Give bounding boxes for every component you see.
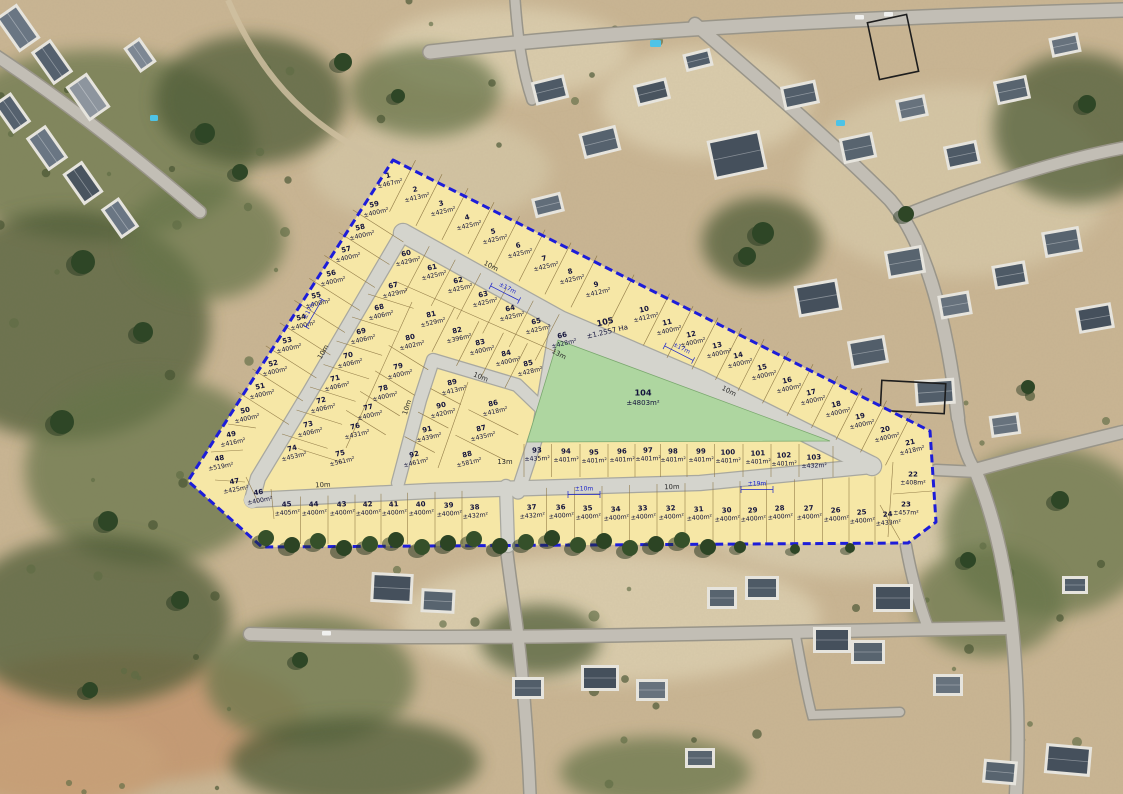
plot-area: ±401m² [660,456,686,464]
house [685,748,715,768]
plot-number: 39 [443,501,454,510]
plot-area: ±401m² [715,457,741,465]
plot-area: ±401m² [771,460,797,468]
house [581,665,619,691]
plot-area: ±435m² [524,455,550,463]
plot-number: 36 [555,503,566,512]
house [989,412,1022,438]
car [322,631,331,636]
house [982,759,1018,786]
plot-number: 32 [665,504,676,513]
plot-number: 23 [901,501,911,509]
house [873,584,913,612]
plot-area: ±401m² [745,458,771,466]
plot-number: 97 [643,446,653,454]
pool [836,120,845,126]
plot-number: 99 [696,447,706,455]
plot-area: ±401m² [553,456,579,464]
plot-area: ±401m² [581,457,607,465]
plot-number: 40 [415,500,426,509]
plot-number: 30 [721,506,732,515]
plot-number: 27 [803,504,814,513]
house [370,572,414,604]
plot-number: 24 [882,510,893,519]
road-width-label: 10m [315,481,331,490]
plot-number: 101 [750,449,765,458]
plot-number: 26 [830,506,841,515]
plot-number: 47 [229,477,240,487]
plot-number: 45 [281,500,292,509]
pool [650,40,661,47]
plot-number: 43 [336,500,347,509]
plot-area: ±4803m² [626,399,659,407]
road-width-label: 13m [497,458,513,466]
plot-number: 41 [388,500,399,509]
plot-number: 37 [526,503,537,512]
plot-number: 28 [774,504,785,513]
site-plan-canvas: 1±467m²2±413m²3±425m²4±425m²5±425m²6±425… [0,0,1123,794]
pool [150,115,158,121]
plot-area: ±401m² [688,456,714,464]
house [512,677,544,699]
plot-area: ±401m² [635,455,661,463]
plot-number: 104 [634,388,651,398]
plot-number: 31 [693,505,704,514]
plot-number: 94 [561,447,571,455]
plot-area: ±408m² [900,480,926,487]
plot-number: 102 [776,451,791,460]
plot-number: 29 [747,506,758,515]
plot-number: 46 [253,488,264,498]
plot-area: ±457m² [893,510,919,517]
plot-number: 38 [469,503,480,512]
aerial-site-plan: 1±467m²2±413m²3±425m²4±425m²5±425m²6±425… [0,0,1123,794]
house [745,576,779,600]
plot-area: ±401m² [609,456,635,464]
plot-number: 42 [362,500,373,509]
house [1044,743,1092,777]
plot-number: 103 [806,453,821,462]
car [855,15,864,20]
house [851,640,885,664]
plot-area: ±432m² [801,462,827,470]
plot-number: 35 [582,504,593,513]
plot-number: 34 [610,505,621,514]
dimension-label: ±19m [748,481,767,488]
dimension-label: ±10m [575,486,594,493]
plot-number: 96 [617,447,627,455]
house [1062,576,1088,594]
road [936,470,978,472]
plot-number: 95 [589,448,599,456]
plot-number: 22 [908,471,918,479]
plot-number: 98 [668,447,678,455]
plot-number: 44 [308,500,319,509]
plot-number: 48 [214,454,225,464]
house [707,587,737,609]
road-width-label: 10m [664,483,680,492]
plot-number: 25 [856,508,867,517]
plot-number: 93 [532,446,542,454]
house [420,588,455,614]
house [636,679,668,701]
plot-number: 100 [720,448,735,457]
plot-number: 33 [637,504,648,513]
car [884,12,893,17]
house [933,674,963,696]
house [813,627,851,653]
